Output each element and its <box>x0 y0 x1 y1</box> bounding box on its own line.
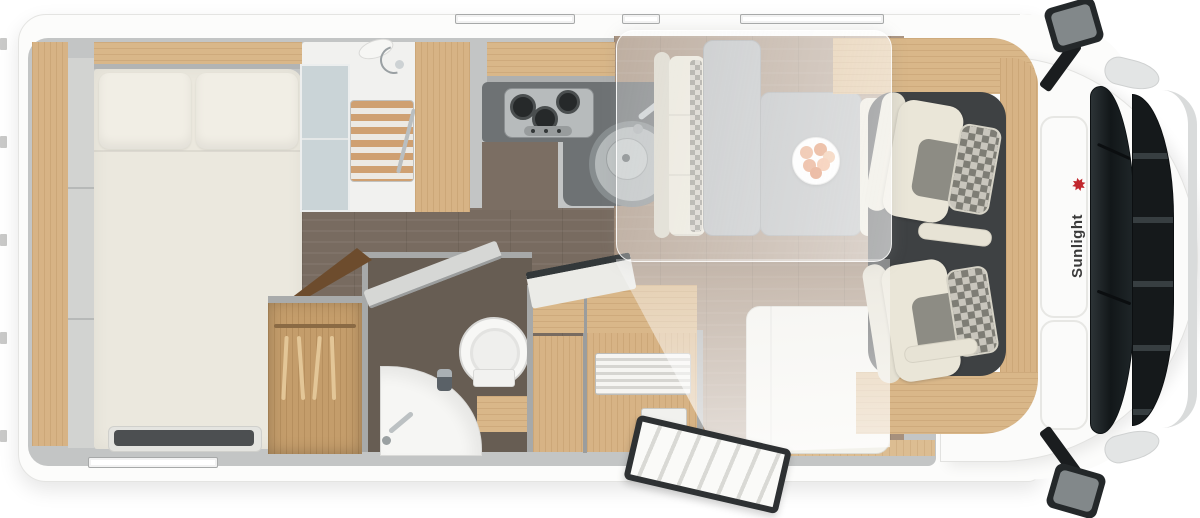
window-strip <box>88 457 218 468</box>
bed-foot-mat-inner <box>114 430 254 446</box>
headlight-icon <box>1101 54 1162 95</box>
chrome-trim <box>1162 90 1197 428</box>
duvet-seam <box>94 150 302 152</box>
rear-edge-tick <box>0 234 7 246</box>
toilet-shelf <box>477 396 529 432</box>
hob-knob-icon <box>544 129 548 133</box>
mirror-glass <box>1052 469 1100 513</box>
wardrobe-edge <box>268 296 362 303</box>
toilet-flush <box>473 369 515 387</box>
burner-icon <box>556 90 580 114</box>
hob-knob-icon <box>531 129 535 133</box>
tall-cupboard <box>415 42 470 212</box>
washroom-wall <box>362 252 532 258</box>
shower-glass-partition <box>300 64 350 212</box>
overhead-locker <box>94 42 302 64</box>
rear-edge-tick <box>0 136 7 148</box>
kitchen-floor <box>482 142 558 210</box>
pillow <box>99 73 191 149</box>
rear-edge-tick <box>0 430 7 442</box>
kitchen-overhead-locker <box>487 42 615 76</box>
lower-cabinet <box>533 336 583 452</box>
rear-edge-tick <box>0 38 7 50</box>
hanging-rail <box>274 324 356 328</box>
basin-drain-icon <box>382 436 391 445</box>
drop-down-bed-overlay <box>616 30 892 262</box>
shower-mixer-icon <box>395 60 404 69</box>
floorplan-canvas: Sunlight ✸ <box>0 0 1200 518</box>
roof-skylight-icon <box>1040 320 1088 430</box>
window-strip <box>740 14 884 24</box>
brand-logo-text: Sunlight <box>1069 191 1087 301</box>
mirror-glass <box>1050 3 1098 47</box>
window-strip <box>622 14 660 24</box>
rear-shelf <box>32 42 68 446</box>
pillow <box>196 73 298 149</box>
window-strip <box>455 14 575 24</box>
rear-edge-tick <box>0 332 7 344</box>
washroom-wall <box>362 252 368 452</box>
bed-side-panel <box>68 58 94 448</box>
side-mirror-icon <box>1045 462 1108 518</box>
hob-knob-icon <box>557 129 561 133</box>
soap-dispenser-top <box>437 369 452 377</box>
